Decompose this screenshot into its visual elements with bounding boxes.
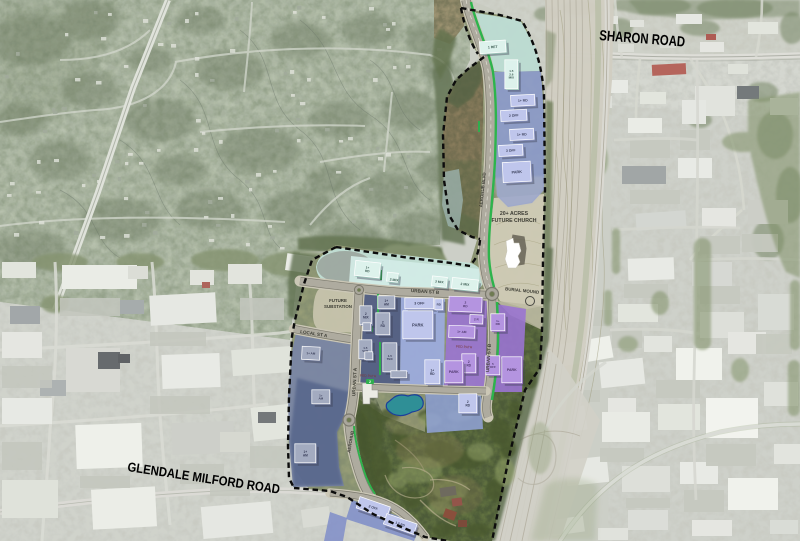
svg-text:AM: AM xyxy=(384,302,389,306)
svg-text:2: 2 xyxy=(369,380,371,384)
svg-text:1 RET: 1 RET xyxy=(488,45,499,50)
svg-text:1+ RD: 1+ RD xyxy=(517,132,527,137)
svg-text:2 OFF: 2 OFF xyxy=(509,113,519,117)
svg-text:OFF: OFF xyxy=(490,365,496,369)
svg-text:RD: RD xyxy=(466,363,471,367)
svg-text:RD: RD xyxy=(463,304,468,308)
svg-text:RD: RD xyxy=(430,372,435,376)
svg-text:20+ ACRES: 20+ ACRES xyxy=(500,211,529,217)
svg-text:1+ AM: 1+ AM xyxy=(306,351,316,355)
svg-text:3 OFF: 3 OFF xyxy=(506,148,516,152)
svg-text:1+ AM: 1+ AM xyxy=(457,330,467,334)
svg-text:SUBSTATION: SUBSTATION xyxy=(324,304,352,309)
svg-text:FUTURE: FUTURE xyxy=(329,298,347,303)
svg-text:PARK: PARK xyxy=(449,370,459,374)
svg-text:RD: RD xyxy=(380,324,385,328)
svg-text:PARK: PARK xyxy=(412,322,424,327)
svg-text:MIX: MIX xyxy=(509,76,514,80)
svg-text:PARK: PARK xyxy=(507,368,517,372)
svg-text:AM: AM xyxy=(318,397,323,401)
svg-text:RD: RD xyxy=(465,403,470,407)
svg-text:3 OFF: 3 OFF xyxy=(414,302,425,306)
svg-text:PARK: PARK xyxy=(511,170,522,175)
svg-text:AM: AM xyxy=(303,453,308,457)
svg-text:FUTURE CHURCH: FUTURE CHURCH xyxy=(492,218,537,224)
svg-text:TBC: TBC xyxy=(387,357,394,361)
svg-text:MIX: MIX xyxy=(363,315,370,319)
svg-text:1+ RD: 1+ RD xyxy=(518,98,528,103)
